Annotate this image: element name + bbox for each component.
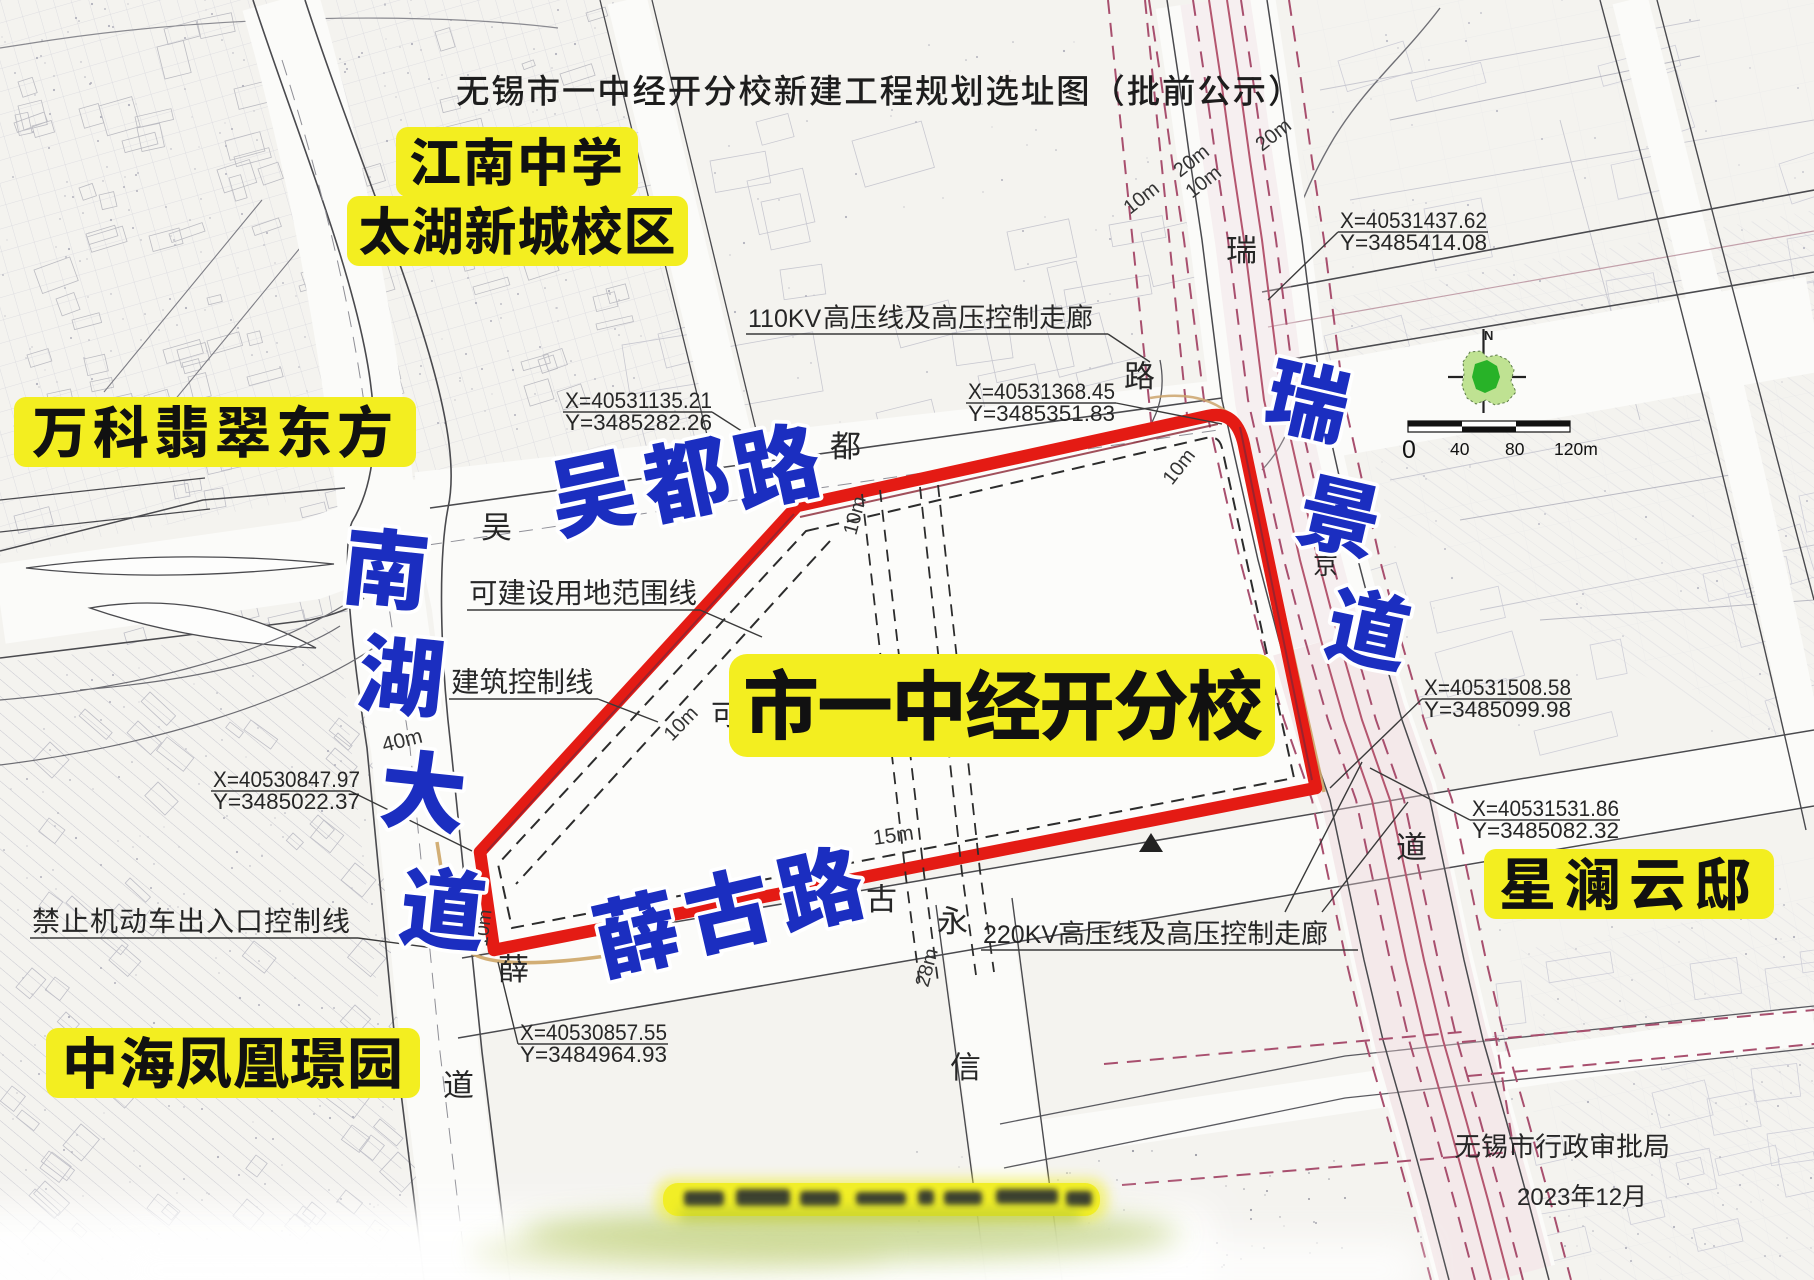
svg-text:40: 40	[1450, 439, 1470, 459]
svg-text:0: 0	[1402, 436, 1416, 464]
svg-text:Y=3485082.32: Y=3485082.32	[1472, 818, 1619, 843]
svg-text:Y=3484964.93: Y=3484964.93	[520, 1042, 667, 1067]
svg-text:Y=3485414.08: Y=3485414.08	[1340, 230, 1487, 255]
svg-text:N: N	[1484, 328, 1493, 343]
svg-text:Y=3485282.26: Y=3485282.26	[565, 410, 712, 435]
svg-text:110KV: 110KV	[748, 305, 822, 333]
svg-text:Y=3485022.37: Y=3485022.37	[213, 789, 360, 814]
svg-text:80: 80	[1505, 439, 1525, 459]
svg-text:Y=3485099.98: Y=3485099.98	[1424, 697, 1571, 722]
svg-text:Y=3485351.83: Y=3485351.83	[968, 401, 1115, 426]
svg-text:2023: 2023	[1517, 1184, 1570, 1211]
svg-text:12: 12	[1595, 1184, 1622, 1211]
svg-text:220KV: 220KV	[983, 921, 1058, 949]
svg-text:120m: 120m	[1554, 439, 1598, 459]
